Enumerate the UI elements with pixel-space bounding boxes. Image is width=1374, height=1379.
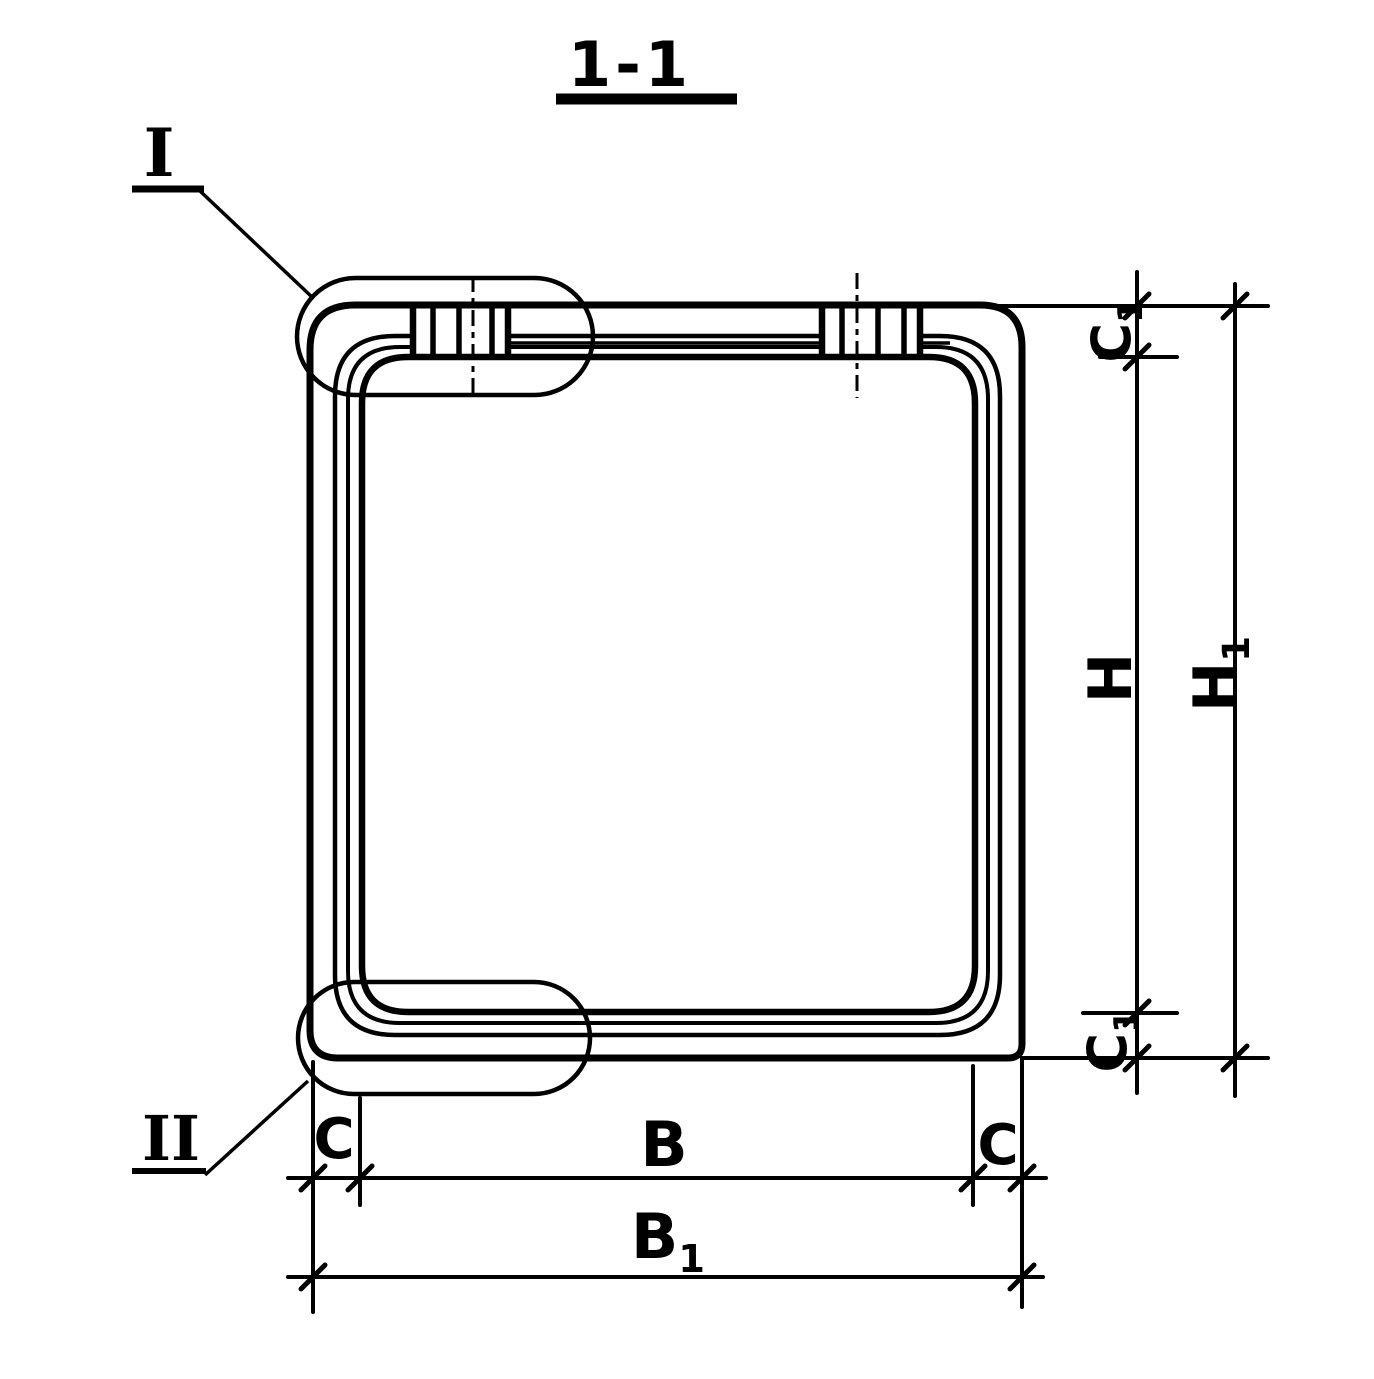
- section-drawing-canvas: 1-1 I II C B C B1 C1 H H1 C1: [0, 0, 1374, 1379]
- dim-label-c1-top: C1: [1080, 300, 1150, 363]
- top-slab-key-left: [413, 276, 508, 400]
- frame-layer-line-1: [335, 336, 1000, 1035]
- detail-balloon-bottom-left: [298, 982, 590, 1094]
- dim-label-c-left: C: [313, 1107, 354, 1172]
- frame-outer-edge: [310, 305, 1022, 1058]
- frame-section: [310, 273, 1022, 1058]
- dimension-ticks: [301, 294, 1247, 1289]
- dim-label-b: B: [640, 1108, 687, 1181]
- dim-label-h1-subscript: 1: [1214, 636, 1258, 662]
- dim-label-c1-top-subscript: 1: [1111, 300, 1150, 323]
- dim-label-c-right: C: [977, 1113, 1018, 1178]
- detail-leader-bottom: [205, 1081, 308, 1175]
- top-slab-key-right: [822, 273, 920, 398]
- dim-label-b1: B1: [631, 1200, 705, 1282]
- detail-leader-top: [200, 191, 312, 297]
- dim-label-h: H: [1076, 653, 1146, 703]
- detail-callout-i-label: I: [144, 114, 175, 192]
- drawing-sheet: 1-1 I II C B C B1 C1 H H1 C1: [0, 0, 1374, 1379]
- dim-label-c1-top-base: C: [1080, 323, 1143, 363]
- dimension-lines: [288, 272, 1268, 1312]
- dim-label-c1-bottom: C1: [1076, 1010, 1146, 1073]
- dim-label-c1-bottom-base: C: [1076, 1033, 1139, 1073]
- frame-inner-edge: [362, 357, 975, 1012]
- dim-label-h1: H1: [1181, 636, 1258, 712]
- dim-label-b1-subscript: 1: [678, 1237, 705, 1282]
- section-title: 1-1: [568, 28, 692, 101]
- detail-callout-ii-label: II: [142, 1102, 200, 1175]
- frame-layer-line-2: [348, 347, 988, 1023]
- dim-label-b1-base: B: [631, 1200, 678, 1273]
- dim-label-h1-base: H: [1181, 662, 1251, 712]
- dim-label-c1-bottom-subscript: 1: [1107, 1010, 1146, 1033]
